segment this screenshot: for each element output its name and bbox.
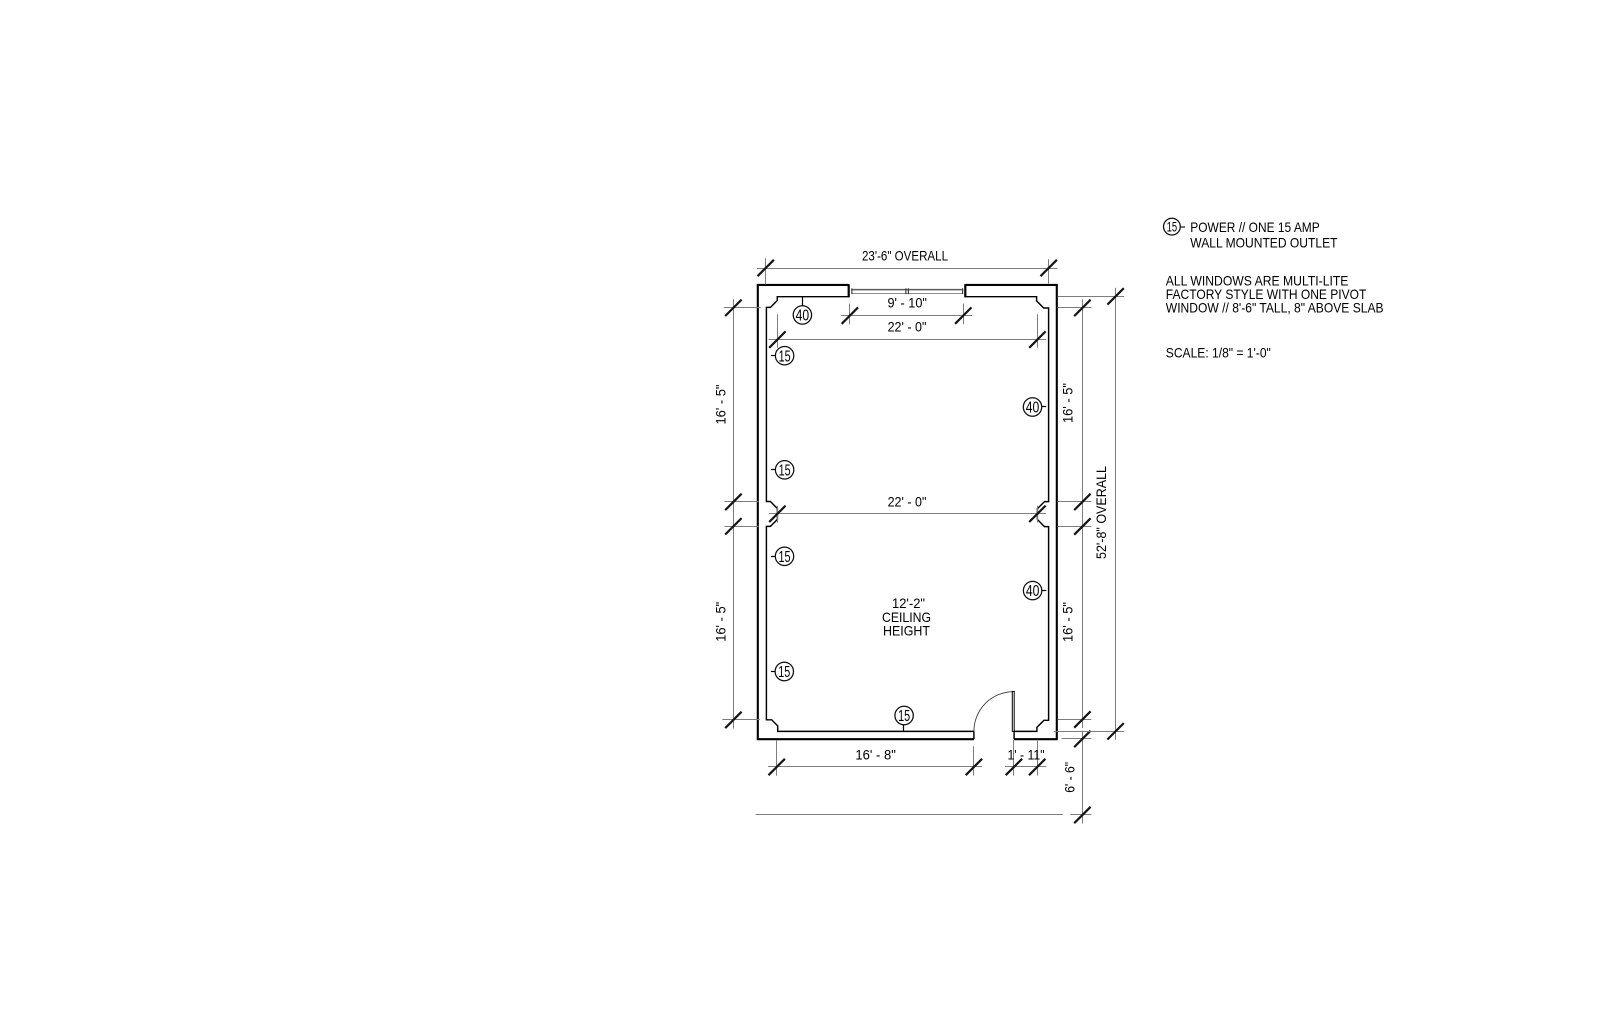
svg-text:HEIGHT: HEIGHT [883, 622, 930, 638]
svg-text:40: 40 [1026, 583, 1040, 600]
svg-text:16' - 5": 16' - 5" [713, 602, 729, 642]
svg-text:16' - 5": 16' - 5" [713, 384, 729, 424]
svg-text:15: 15 [778, 664, 790, 681]
svg-text:SCALE: 1/8" = 1'-0": SCALE: 1/8" = 1'-0" [1166, 344, 1271, 360]
svg-text:15: 15 [779, 549, 791, 566]
svg-text:1' - 11": 1' - 11" [1007, 746, 1044, 762]
svg-text:15: 15 [1167, 218, 1178, 234]
svg-text:22' - 0": 22' - 0" [888, 494, 927, 510]
svg-text:15: 15 [779, 348, 791, 365]
svg-text:15: 15 [898, 708, 910, 725]
svg-text:9' - 10": 9' - 10" [888, 295, 927, 311]
svg-text:WALL MOUNTED OUTLET: WALL MOUNTED OUTLET [1190, 235, 1338, 251]
svg-text:40: 40 [1026, 400, 1040, 417]
svg-text:WINDOW // 8'-6" TALL, 8" ABOVE: WINDOW // 8'-6" TALL, 8" ABOVE SLAB [1166, 300, 1384, 316]
svg-text:16' - 8": 16' - 8" [855, 747, 896, 763]
svg-text:6' - 6": 6' - 6" [1061, 762, 1077, 793]
svg-text:15: 15 [779, 462, 791, 479]
svg-text:POWER // ONE 15 AMP: POWER // ONE 15 AMP [1190, 219, 1319, 235]
svg-text:16' - 5": 16' - 5" [1060, 383, 1076, 423]
svg-text:52'-8" OVERALL: 52'-8" OVERALL [1093, 466, 1109, 559]
svg-text:22' - 0": 22' - 0" [888, 319, 927, 335]
svg-text:40: 40 [796, 308, 810, 325]
svg-text:23'-6" OVERALL: 23'-6" OVERALL [862, 248, 948, 264]
svg-text:16' - 5": 16' - 5" [1060, 602, 1076, 642]
